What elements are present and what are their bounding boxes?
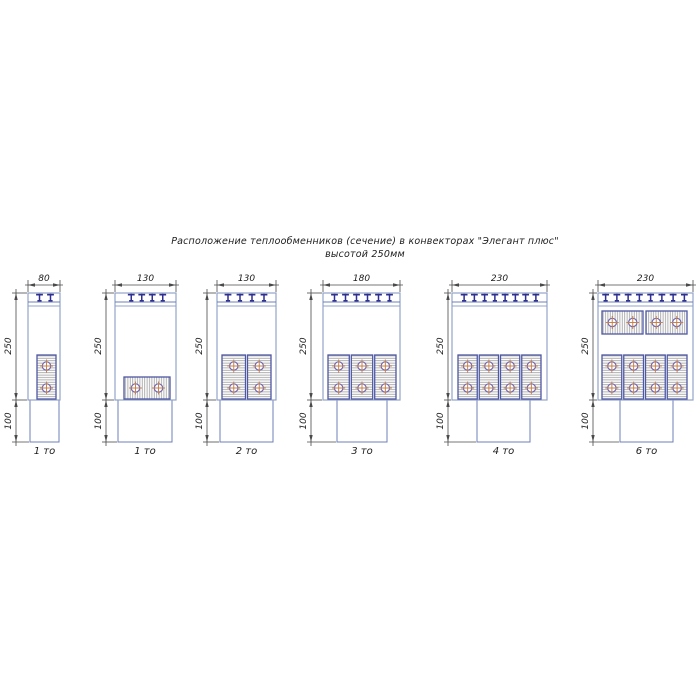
dimension-height-upper-label: 250 xyxy=(94,337,104,354)
heat-exchanger-unit xyxy=(501,355,520,399)
drawing-sheet: Расположение теплообменников (сечение) в… xyxy=(0,0,700,700)
dimension-height-lower-label: 100 xyxy=(581,412,591,429)
convector-variant-230-4to: 2302501004 то xyxy=(436,274,550,457)
duct-box xyxy=(220,400,273,442)
dimension-height-upper-label: 250 xyxy=(581,337,591,354)
heat-exchanger-unit xyxy=(351,355,372,399)
heat-exchanger-unit xyxy=(646,311,687,334)
heat-exchanger-unit xyxy=(522,355,541,399)
dimension-width-label: 80 xyxy=(38,274,50,284)
dimension-height-lower-label: 100 xyxy=(195,412,205,429)
dimension-height: 250100 xyxy=(195,289,219,446)
dimension-width: 230 xyxy=(595,274,696,292)
duct-box xyxy=(337,400,387,442)
dimension-width: 130 xyxy=(112,274,179,292)
heat-exchanger-unit xyxy=(37,355,56,399)
variant-count-label: 1 то xyxy=(34,446,55,457)
convector-variant-130-1to: 1302501001 то xyxy=(94,274,179,457)
dimension-height-upper-label: 250 xyxy=(4,337,14,354)
dimension-width-label: 130 xyxy=(137,274,154,284)
heat-exchanger-unit xyxy=(124,377,170,399)
heat-exchanger-unit xyxy=(458,355,477,399)
variant-count-label: 3 то xyxy=(351,446,372,457)
heat-exchanger-unit xyxy=(248,355,272,399)
heat-exchanger-unit xyxy=(222,355,246,399)
technical-drawing: 802501001 то1302501001 то1302501002 то18… xyxy=(0,0,700,700)
convector-variant-130-2to: 1302501002 то xyxy=(195,274,279,457)
variant-count-label: 2 то xyxy=(236,446,257,457)
variant-count-label: 4 то xyxy=(493,446,514,457)
convector-variant-230-6to: 2302501006 то xyxy=(581,274,696,457)
dimension-height-lower-label: 100 xyxy=(436,412,446,429)
dimension-height-upper-label: 250 xyxy=(195,337,205,354)
dimension-width-label: 180 xyxy=(353,274,370,284)
heat-exchanger-unit xyxy=(328,355,349,399)
dimension-height-lower-label: 100 xyxy=(4,412,14,429)
duct-box xyxy=(30,400,59,442)
convector-variant-80-1to: 802501001 то xyxy=(4,274,63,457)
dimension-height: 250100 xyxy=(94,289,117,446)
dimension-width-label: 230 xyxy=(637,274,654,284)
dimension-height-lower-label: 100 xyxy=(94,412,104,429)
dimension-width: 130 xyxy=(214,274,279,292)
heat-exchanger-unit xyxy=(667,355,687,399)
convector-variant-180-3to: 1802501003 то xyxy=(299,274,403,457)
heat-exchanger-unit xyxy=(602,355,622,399)
variant-count-label: 6 то xyxy=(636,446,657,457)
dimension-width: 80 xyxy=(25,274,63,292)
duct-box xyxy=(477,400,530,442)
heat-exchanger-unit xyxy=(602,311,643,334)
dimension-height-upper-label: 250 xyxy=(299,337,309,354)
dimension-width-label: 230 xyxy=(491,274,508,284)
heat-exchanger-unit xyxy=(624,355,644,399)
heat-exchanger-unit xyxy=(375,355,396,399)
heat-exchanger-unit xyxy=(479,355,498,399)
dimension-height-lower-label: 100 xyxy=(299,412,309,429)
duct-box xyxy=(620,400,673,442)
heat-exchanger-unit xyxy=(646,355,666,399)
variant-count-label: 1 то xyxy=(134,446,155,457)
dimension-width: 230 xyxy=(449,274,550,292)
dimension-height: 250100 xyxy=(4,289,29,446)
duct-box xyxy=(118,400,172,442)
dimension-height-upper-label: 250 xyxy=(436,337,446,354)
dimension-width-label: 130 xyxy=(238,274,255,284)
dimension-width: 180 xyxy=(320,274,403,292)
